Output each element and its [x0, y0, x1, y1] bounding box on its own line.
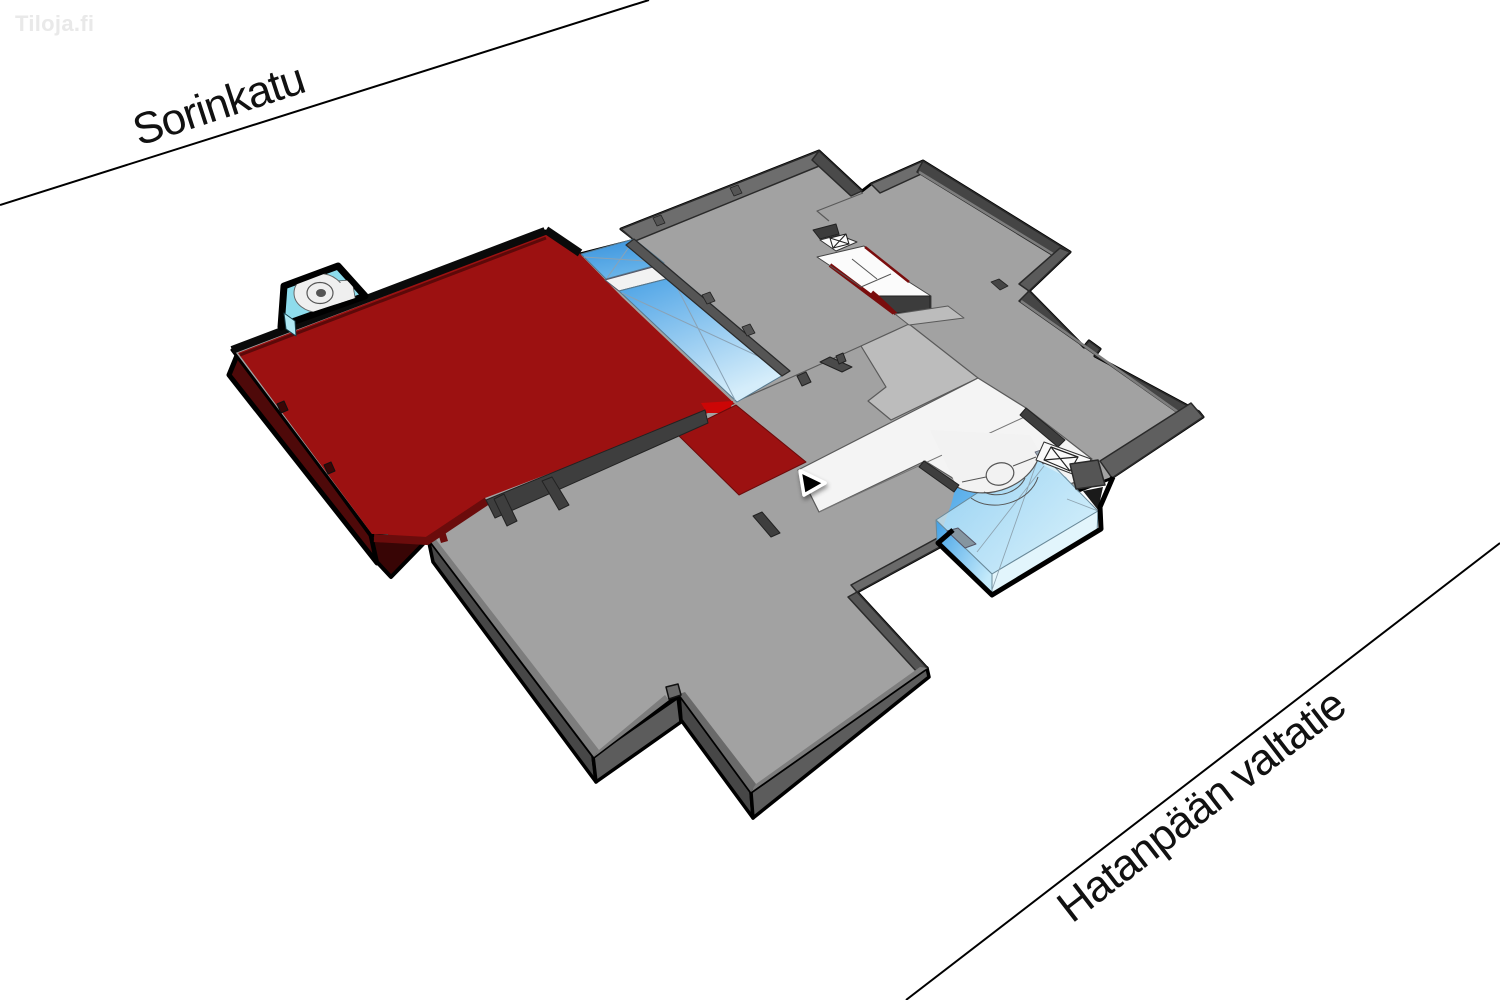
- svg-text:Tiloja.fi: Tiloja.fi: [15, 11, 94, 36]
